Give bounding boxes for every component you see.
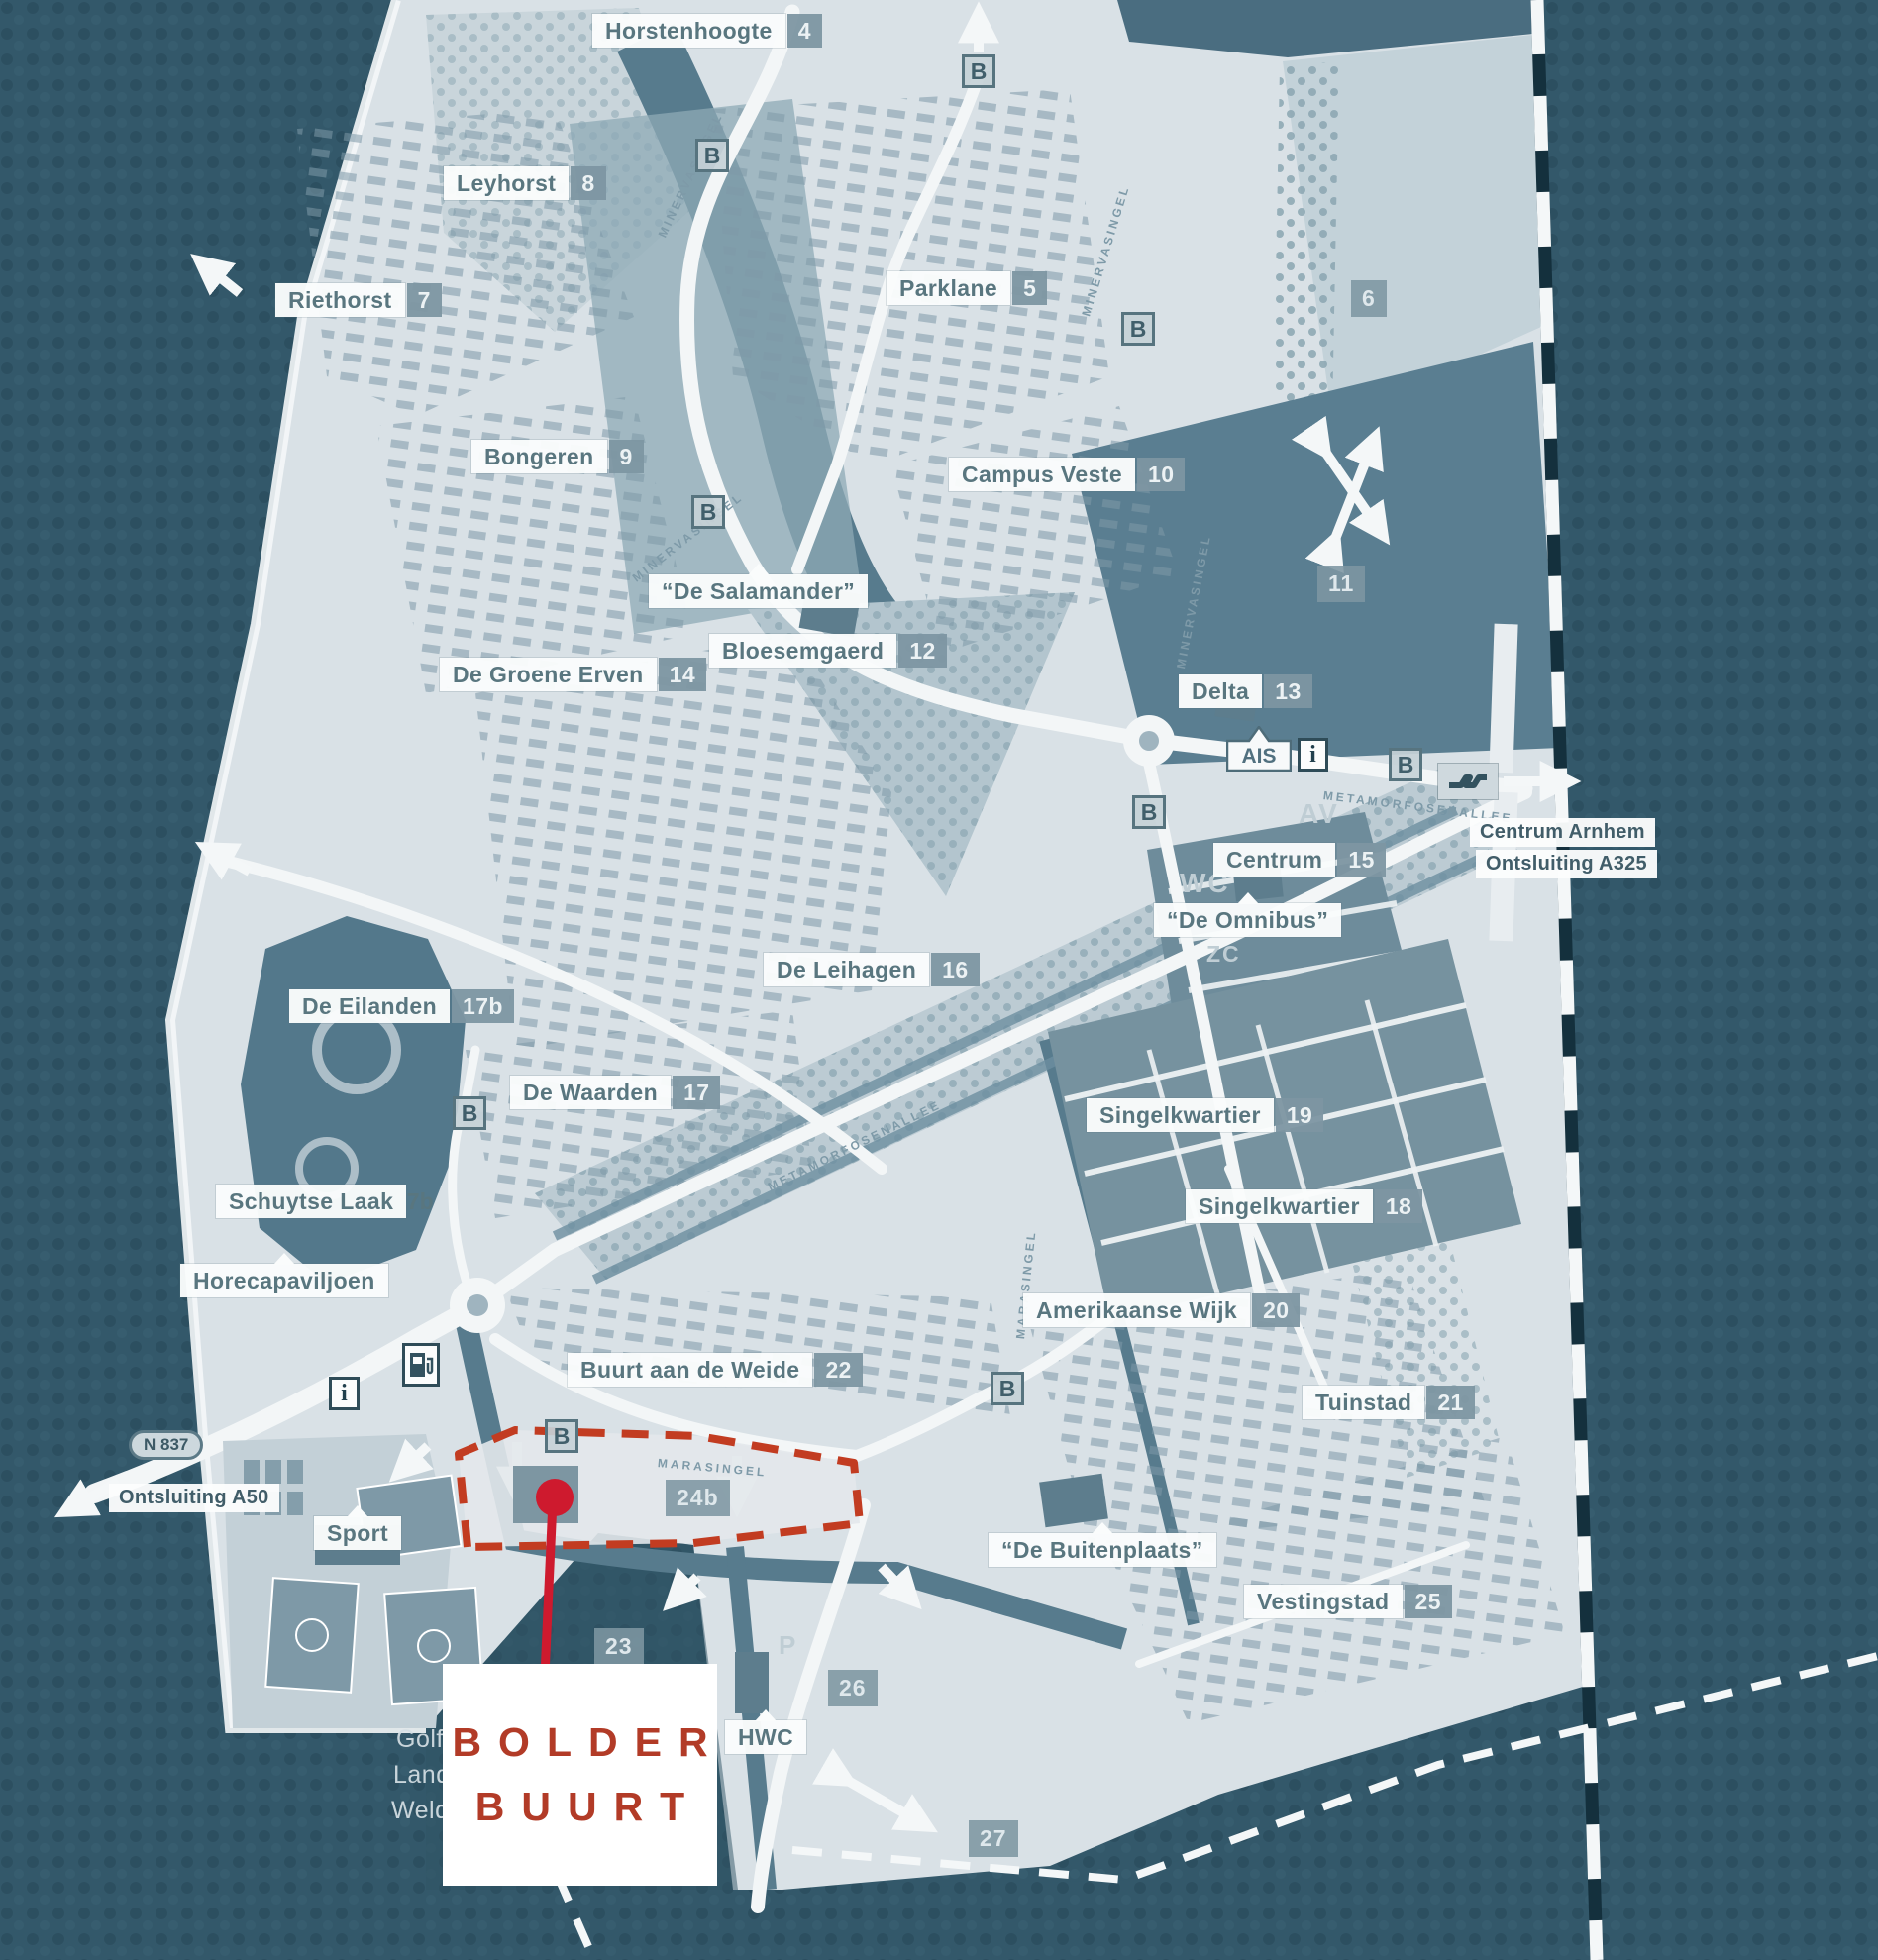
bus-stop-marker: B [545, 1419, 578, 1453]
area-label-riethorst: Riethorst7 [275, 283, 442, 317]
area-label-text: De Groene Erven [440, 658, 657, 691]
area-label-text: Campus Veste [949, 458, 1135, 491]
area-label-text: Vestingstad [1244, 1585, 1403, 1618]
area-label-campus-veste: Campus Veste10 [949, 458, 1185, 491]
bus-stop-marker: B [962, 54, 995, 88]
area-number-badge: 17b [452, 989, 514, 1023]
area-label-singelkwartier: Singelkwartier19 [1087, 1098, 1323, 1132]
area-number-badge: 12 [898, 634, 946, 668]
area-label-text: Singelkwartier [1087, 1098, 1274, 1132]
area-label-text: Bloesemgaerd [709, 634, 896, 668]
area-label-delta: Delta13 [1179, 674, 1312, 708]
label-overlay: Horstenhoogte4Leyhorst8Riethorst7Parklan… [0, 0, 1878, 1960]
zone-badge-24b: 24b [666, 1480, 730, 1516]
info-icon: i [1298, 738, 1328, 772]
area-label--de-salamander-: “De Salamander” [649, 574, 868, 608]
bus-stop-marker: B [1132, 795, 1166, 829]
area-label-horstenhoogte: Horstenhoogte4 [592, 14, 822, 48]
area-label-text: Amerikaanse Wijk [1023, 1293, 1250, 1327]
bolderbuurt-callout: BOLDER BUURT [443, 1664, 717, 1886]
bus-stop-marker: B [991, 1372, 1024, 1405]
area-number-badge: 10 [1137, 458, 1185, 491]
area-label-amerikaanse-wijk: Amerikaanse Wijk20 [1023, 1293, 1300, 1327]
area-label-text: Sport [314, 1516, 401, 1550]
info-icon: i [329, 1377, 360, 1410]
zone-badge-6: 6 [1351, 280, 1387, 317]
ais-station-badge: AIS [1226, 726, 1292, 776]
area-number-badge: 5 [1012, 271, 1047, 305]
area-label-text: De Eilanden [289, 989, 450, 1023]
area-label-hwc: HWC [725, 1720, 806, 1754]
road-number-badge: N 837 [129, 1430, 203, 1460]
area-label-singelkwartier: Singelkwartier18 [1186, 1189, 1422, 1223]
area-number-badge: 16 [931, 953, 979, 986]
bus-stop-marker: B [1121, 312, 1155, 346]
area-label-horecapaviljoen: Horecapaviljoen [180, 1264, 388, 1297]
area-label-text: Buurt aan de Weide [568, 1353, 812, 1387]
area-label-text: Singelkwartier [1186, 1189, 1373, 1223]
street-name-7: MARASINGEL [657, 1456, 767, 1480]
zone-badge-27: 27 [969, 1820, 1018, 1857]
area-label-text: Parklane [887, 271, 1010, 305]
zone-badge-23: 23 [594, 1628, 644, 1665]
area-label-centrum: Centrum15 [1213, 843, 1386, 877]
masterplan-map[interactable]: Horstenhoogte4Leyhorst8Riethorst7Parklan… [0, 0, 1878, 1960]
fuel-station-icon [402, 1343, 440, 1387]
area-label-text: HWC [725, 1720, 806, 1754]
area-label-text: “De Salamander” [649, 574, 868, 608]
area-number-badge: 18 [1375, 1189, 1422, 1223]
area-label-text: Riethorst [275, 283, 405, 317]
area-label--de-omnibus-: “De Omnibus” [1154, 903, 1341, 937]
area-label-text: Horstenhoogte [592, 14, 785, 48]
ns-rail-icon [1438, 764, 1498, 799]
area-label-text: De Waarden [510, 1076, 671, 1109]
area-label-text: Horecapaviljoen [180, 1264, 388, 1297]
street-name-1: MINERVASINGEL [1079, 183, 1132, 318]
poi-text-p: P [779, 1630, 797, 1661]
area-number-badge: 20 [1252, 1293, 1300, 1327]
route-label-1: Ontsluiting A325 [1476, 850, 1657, 878]
zone-badge-26: 26 [828, 1670, 878, 1706]
area-number-badge: 25 [1405, 1585, 1452, 1618]
area-label-tuinstad: Tuinstad21 [1303, 1386, 1475, 1419]
area-number-badge: 8 [571, 166, 605, 200]
area-label-text: Centrum [1213, 843, 1335, 877]
area-label-vestingstad: Vestingstad25 [1244, 1585, 1452, 1618]
area-label-schuytse-laak: Schuytse Laak [216, 1185, 406, 1218]
bus-stop-marker: B [691, 495, 725, 529]
street-name-3: MINERVASINGEL [1174, 533, 1213, 670]
bolderbuurt-title-line2: BUURT [459, 1787, 701, 1827]
area-number-badge: 22 [814, 1353, 862, 1387]
area-label-parklane: Parklane5 [887, 271, 1047, 305]
area-label-bongeren: Bongeren9 [471, 440, 644, 473]
area-number-badge: 21 [1426, 1386, 1474, 1419]
area-label-text: Schuytse Laak [216, 1185, 406, 1218]
area-label-de-eilanden: De Eilanden17b [289, 989, 514, 1023]
route-label-0: Centrum Arnhem [1470, 818, 1655, 847]
poi-text-zc: ZC [1206, 941, 1241, 968]
area-label-sport: Sport [314, 1516, 401, 1550]
route-label-2: Ontsluiting A50 [109, 1484, 279, 1512]
street-name-0: MINERVASINGEL [656, 110, 726, 240]
zone-badge-11: 11 [1317, 566, 1365, 602]
area-number-badge: 15 [1337, 843, 1385, 877]
area-label-de-leihagen: De Leihagen16 [764, 953, 980, 986]
area-label-text: De Leihagen [764, 953, 929, 986]
area-label-text: Bongeren [471, 440, 607, 473]
street-name-2: MINERVASINGEL [630, 490, 746, 585]
area-number-badge: 4 [787, 14, 822, 48]
area-label-leyhorst: Leyhorst8 [444, 166, 606, 200]
street-name-5: METAMORFOSENALLEE [766, 1097, 943, 1193]
area-number-badge: 19 [1276, 1098, 1323, 1132]
area-label-de-groene-erven: De Groene Erven14 [440, 658, 706, 691]
bus-stop-marker: B [695, 139, 729, 172]
area-number-badge: 17 [673, 1076, 720, 1109]
area-label--de-buitenplaats-: “De Buitenplaats” [989, 1533, 1216, 1567]
area-label-text: Leyhorst [444, 166, 569, 200]
area-number-badge: 14 [659, 658, 706, 691]
area-number-badge: 13 [1264, 674, 1311, 708]
area-label-text: “De Omnibus” [1154, 903, 1341, 937]
area-label-text: Tuinstad [1303, 1386, 1424, 1419]
poi-text-av: AV [1299, 798, 1339, 830]
ais-label: AIS [1241, 745, 1276, 768]
area-label-de-waarden: De Waarden17 [510, 1076, 720, 1109]
area-number-badge: 7 [407, 283, 442, 317]
area-label-text: Delta [1179, 674, 1262, 708]
bolderbuurt-title-line1: BOLDER [435, 1722, 724, 1763]
area-number-badge: 9 [609, 440, 644, 473]
bus-stop-marker: B [453, 1096, 486, 1130]
area-label-bloesemgaerd: Bloesemgaerd12 [709, 634, 947, 668]
area-label-text: “De Buitenplaats” [989, 1533, 1216, 1567]
area-label-buurt-aan-de-weide: Buurt aan de Weide22 [568, 1353, 863, 1387]
bus-stop-marker: B [1389, 748, 1422, 781]
